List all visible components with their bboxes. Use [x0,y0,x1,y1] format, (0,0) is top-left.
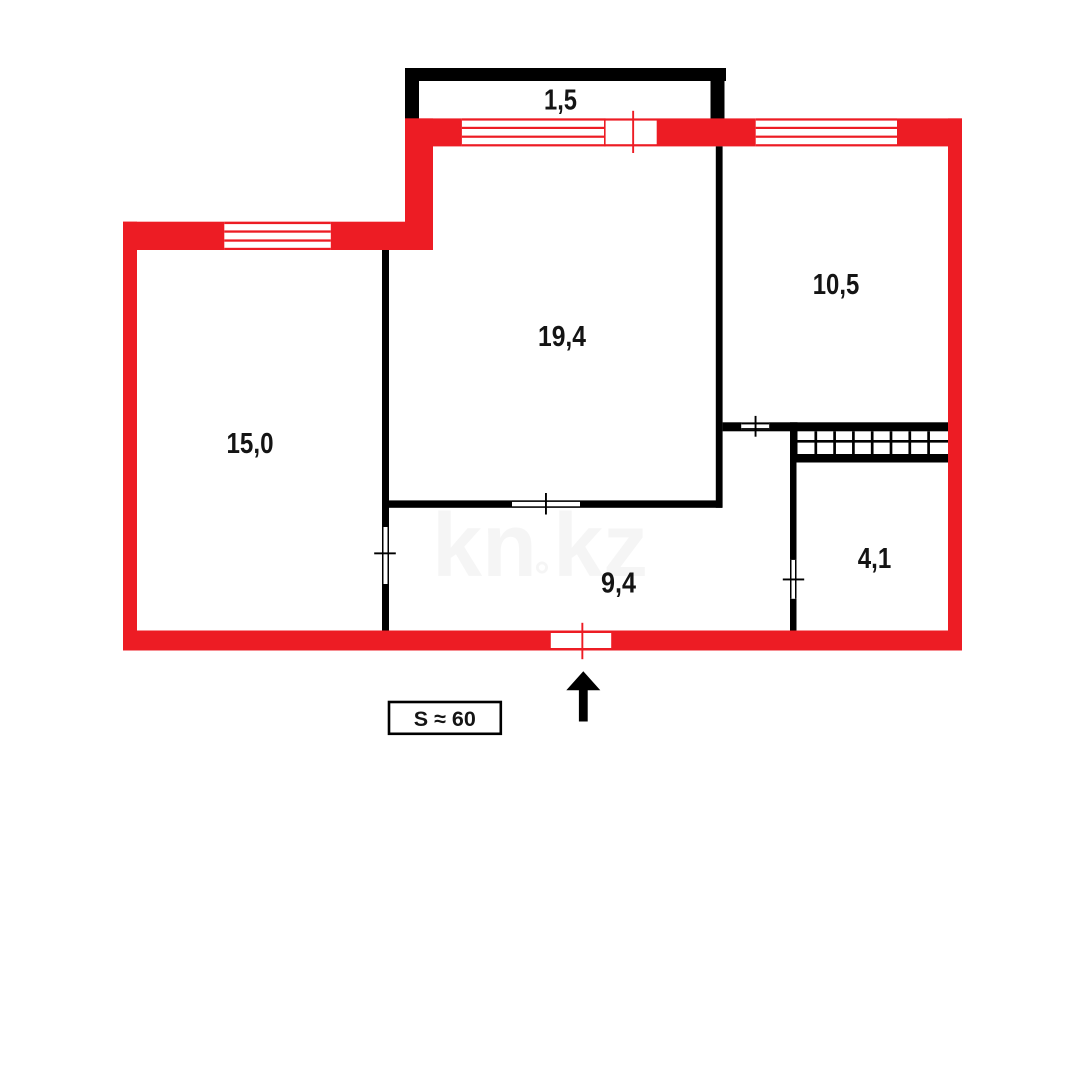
svg-text:10,5: 10,5 [813,269,860,301]
svg-text:S ≈ 60: S ≈ 60 [414,707,476,731]
svg-text:4,1: 4,1 [858,543,892,575]
svg-text:1,5: 1,5 [544,85,577,117]
svg-text:19,4: 19,4 [538,321,586,353]
svg-text:9,4: 9,4 [601,568,636,600]
svg-text:kn: kn [432,496,537,596]
svg-text:15,0: 15,0 [227,428,274,460]
